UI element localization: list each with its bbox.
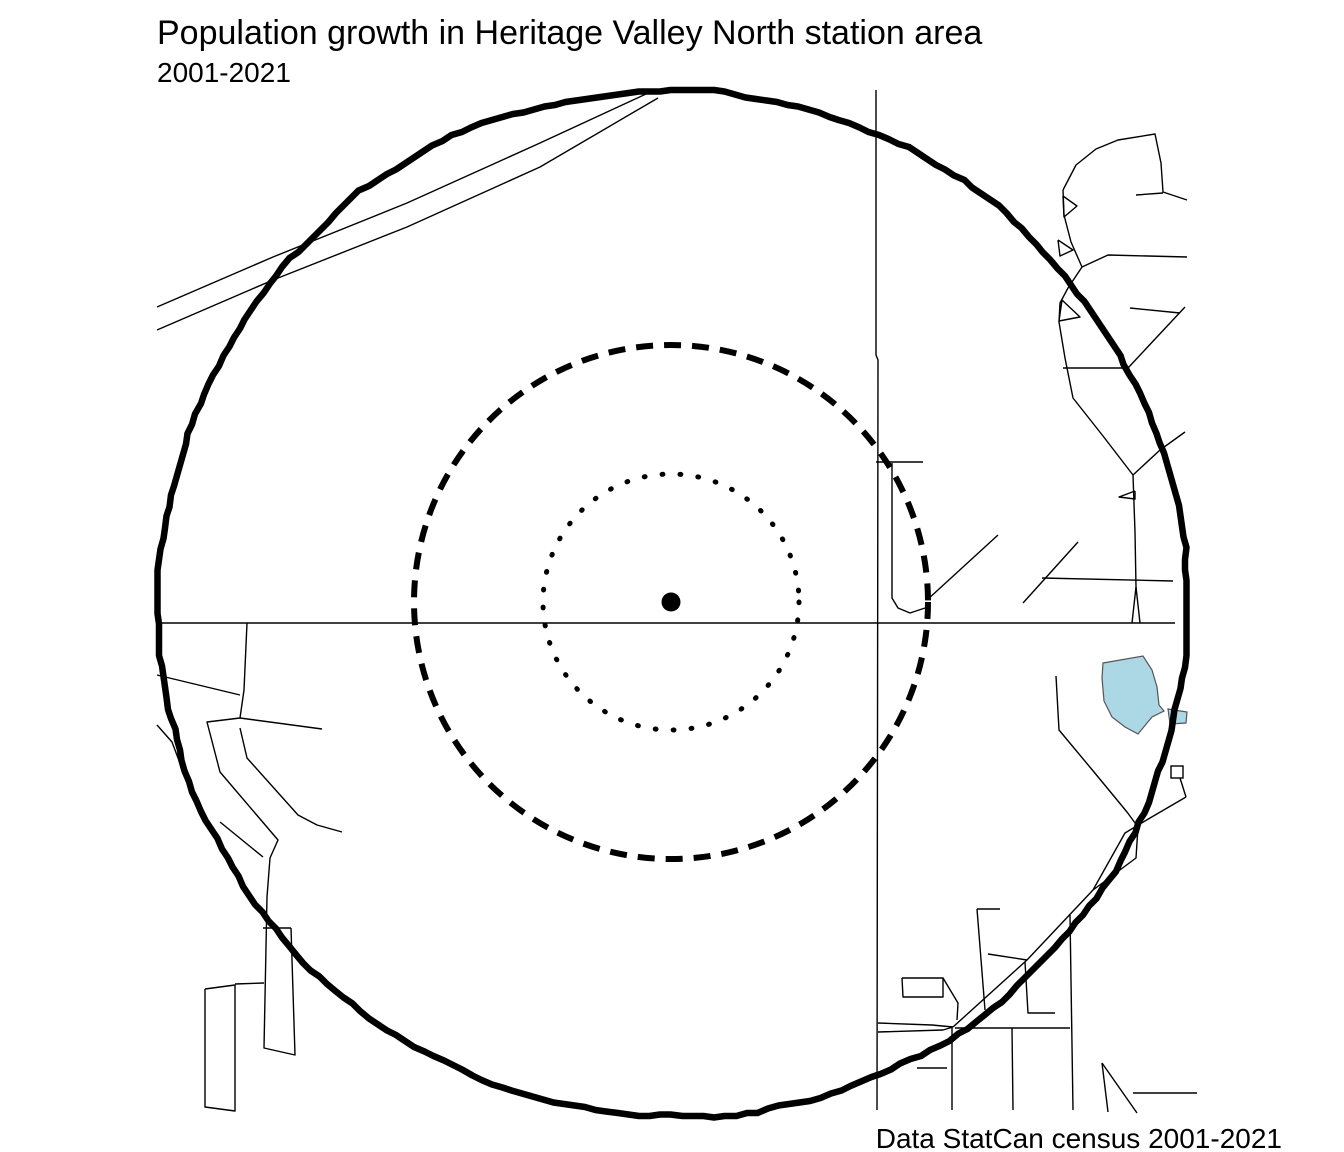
road-loop-4 [1119,491,1135,499]
road-ne-spike [1136,587,1140,623]
road-se-block-diagonal [943,978,958,1020]
road-se-diagonal-c [988,954,1027,960]
road-loop-1 [1063,196,1077,217]
road-ne-branch [1136,193,1163,195]
road-building-lane [1180,778,1186,797]
road-main-vertical [876,90,878,1110]
road-se-vertical-3 [1012,1028,1013,1110]
road-w-long-road [207,718,295,1055]
lake-polygon [1102,656,1164,734]
road-loop-3 [1059,300,1080,321]
road-w-rect1 [205,985,235,1111]
road-w-diag-in [157,675,240,695]
road-w-horizontal [240,718,322,729]
road-w-diagonal-2 [240,728,342,832]
road-nw-diagonal-2 [157,98,658,330]
road-mid-diagonal-a [927,535,998,600]
road-mid-diagonal-b [1023,542,1078,603]
data-source-caption: Data StatCan census 2001-2021 [876,1124,1282,1152]
road-w-rect1-link [235,983,264,984]
road-w-vertical [240,623,247,718]
road-se-vertical-1 [977,909,985,1010]
station-marker [662,593,681,612]
map-figure: Population growth in Heritage Valley Nor… [0,0,1344,1152]
road-ne-horizontal-1 [1082,255,1187,267]
road-nw-diagonal-1 [157,94,646,307]
map-canvas [0,0,1344,1152]
road-se-block [902,978,943,997]
road-se-horizontal-1 [878,1023,953,1027]
road-se-horizontal-2 [878,1027,953,1032]
building-footprint [1171,766,1183,778]
road-se-parallel-road [953,797,1186,1027]
road-ne-horizontal-2 [1130,308,1180,313]
road-east-horizontal [1042,578,1173,581]
road-ne-curve-top [1063,134,1187,200]
road-se-vertical-4 [1070,915,1073,1110]
